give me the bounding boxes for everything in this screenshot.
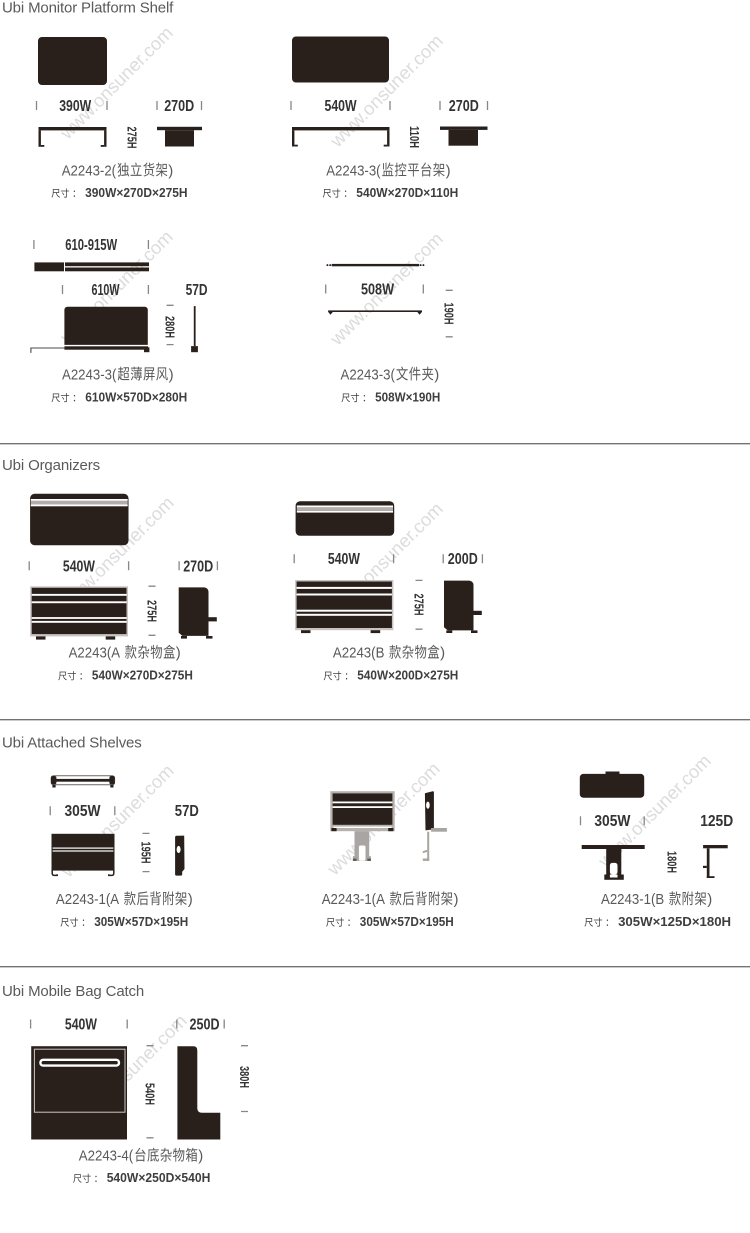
svg-text:305W×57D×195H: 305W×57D×195H [360, 915, 454, 929]
svg-text:A2243-3(: A2243-3( [62, 366, 116, 383]
svg-text:610-915W: 610-915W [65, 237, 118, 254]
svg-text:A2243(A: A2243(A [69, 645, 124, 662]
svg-text:): ) [176, 645, 181, 662]
svg-text:540W: 540W [65, 1017, 98, 1034]
svg-text:275H: 275H [145, 600, 160, 622]
svg-text:Ubi Attached Shelves: Ubi Attached Shelves [2, 734, 142, 751]
svg-text:Ubi Mobile Bag Catch: Ubi Mobile Bag Catch [2, 983, 144, 1000]
svg-text:275H: 275H [412, 594, 427, 616]
svg-text:380H: 380H [237, 1066, 252, 1088]
svg-text:): ) [434, 366, 439, 383]
svg-text:540W: 540W [325, 98, 358, 115]
svg-text:270D: 270D [164, 98, 194, 115]
svg-text:305W: 305W [594, 813, 631, 830]
svg-text:540W×250D×540H: 540W×250D×540H [107, 1171, 211, 1185]
svg-text:610W: 610W [92, 282, 121, 299]
svg-text:): ) [188, 891, 193, 908]
svg-text:Ubi Monitor Platform Shelf: Ubi Monitor Platform Shelf [2, 0, 174, 17]
svg-text:540W: 540W [328, 551, 361, 568]
svg-text:): ) [198, 1148, 203, 1165]
svg-text:540W×270D×110H: 540W×270D×110H [356, 186, 458, 200]
svg-text:A2243-4(: A2243-4( [79, 1148, 133, 1165]
svg-text:A2243-3(: A2243-3( [341, 366, 395, 383]
svg-text:275H: 275H [125, 127, 140, 149]
svg-text:390W×270D×275H: 390W×270D×275H [85, 186, 188, 200]
svg-text:540H: 540H [143, 1083, 158, 1105]
svg-text:180H: 180H [665, 851, 680, 873]
svg-text:A2243-1(A: A2243-1(A [322, 891, 389, 908]
svg-text:305W×125D×180H: 305W×125D×180H [618, 915, 731, 929]
svg-text:390W: 390W [59, 98, 92, 115]
svg-text:Ubi Organizers: Ubi Organizers [2, 457, 100, 474]
svg-text:): ) [454, 891, 459, 908]
svg-text:250D: 250D [190, 1017, 220, 1034]
svg-text:508W×190H: 508W×190H [375, 390, 440, 404]
svg-text:): ) [707, 891, 712, 908]
svg-text:A2243-3(: A2243-3( [326, 162, 380, 179]
svg-text:): ) [446, 162, 451, 179]
svg-text:195H: 195H [139, 842, 154, 864]
svg-text:270D: 270D [449, 98, 479, 115]
svg-text:305W×57D×195H: 305W×57D×195H [94, 915, 188, 929]
svg-text:540W×200D×275H: 540W×200D×275H [357, 669, 458, 683]
svg-text:): ) [168, 162, 173, 179]
svg-text:280H: 280H [163, 316, 178, 338]
svg-text:270D: 270D [183, 558, 213, 575]
svg-text:305W: 305W [65, 803, 102, 820]
svg-text:110H: 110H [407, 126, 422, 148]
svg-text:540W: 540W [63, 558, 96, 575]
svg-text:540W×270D×275H: 540W×270D×275H [92, 669, 193, 683]
svg-text:A2243-1(A: A2243-1(A [56, 891, 123, 908]
svg-text:508W: 508W [361, 282, 395, 299]
svg-text:A2243-1(B: A2243-1(B [601, 891, 668, 908]
svg-text:): ) [440, 645, 445, 662]
svg-text:A2243-2(: A2243-2( [62, 162, 116, 179]
svg-text:): ) [169, 366, 174, 383]
svg-text:125D: 125D [700, 813, 733, 830]
svg-text:610W×570D×280H: 610W×570D×280H [85, 390, 187, 404]
svg-text:A2243(B: A2243(B [333, 645, 388, 662]
svg-text:200D: 200D [448, 551, 478, 568]
svg-text:190H: 190H [442, 303, 457, 325]
svg-text:57D: 57D [186, 282, 208, 299]
svg-text:57D: 57D [175, 803, 199, 820]
